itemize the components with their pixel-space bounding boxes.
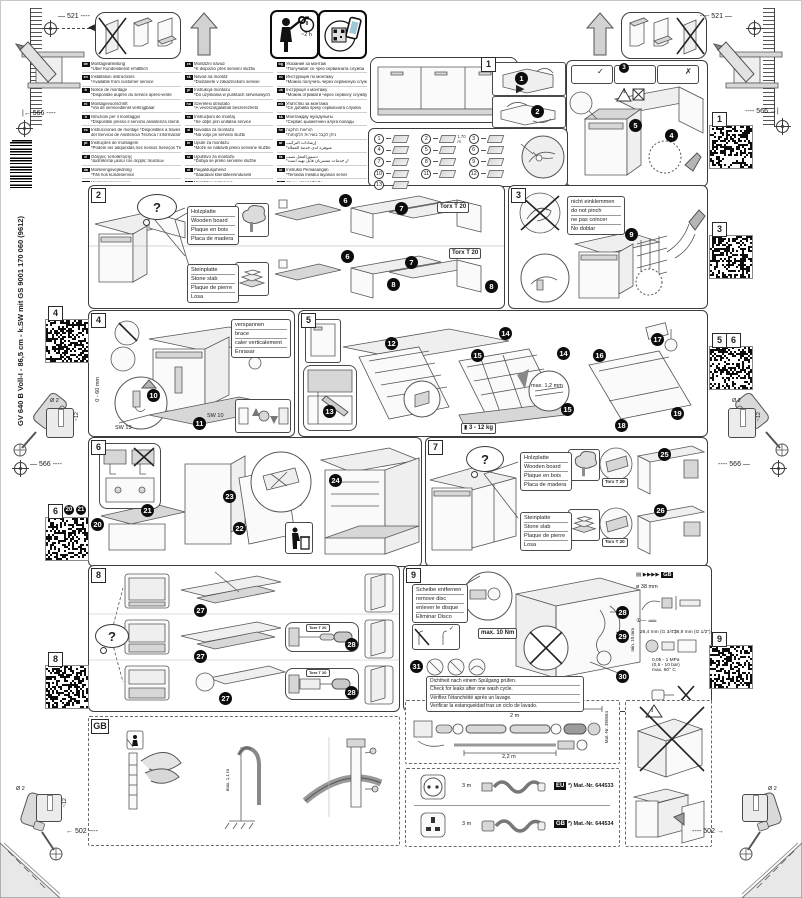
part-item-brackets: 7 xyxy=(374,156,421,168)
language-code-badge: ru xyxy=(277,75,285,80)
torx-label: Torx T 20 xyxy=(602,538,628,547)
language-entry-text: คำแนะนำการติดตั้ง*ขอรับได้จากศูนย์บริการ xyxy=(286,181,331,182)
dim-566-left-mid: — 566 ---- xyxy=(30,461,62,468)
language-code-badge: el xyxy=(82,155,90,160)
drill-depth-label: ~12 xyxy=(74,412,80,421)
dim-521-left: — 521 ---- xyxy=(58,13,90,20)
cord-length: 3 m xyxy=(462,783,471,789)
language-code-badge: en xyxy=(82,75,90,80)
region-badge: EU xyxy=(554,782,566,790)
language-entry-text: Návod na montáž*Dostanete v zákazníckom … xyxy=(194,75,260,85)
fixing-clips-icon xyxy=(392,146,410,154)
part-number: 8 xyxy=(421,157,431,167)
step8-panel: 8 ? xyxy=(88,565,400,712)
drill-diameter-label: Ø 2 xyxy=(16,786,25,792)
warning-icon: ! xyxy=(651,707,653,714)
arrow-left-icon: ◀ xyxy=(88,22,95,33)
step-badge: 3 xyxy=(619,63,629,73)
pinch-note: nicht einklemmendo not pinchne pas coinc… xyxy=(567,196,625,235)
cross-icon: ✗ xyxy=(685,67,692,76)
torque-label: max. 10 Nm xyxy=(478,628,517,639)
step-badge: 8 xyxy=(485,280,498,293)
torx-label: Torx T 20 xyxy=(602,478,628,487)
step7-panel: 7 ? HolzplatteWooden boardPlaque en bois… xyxy=(425,437,708,567)
language-entry-text: Monteringsvejledning*Fås hos kundeservic… xyxy=(91,168,134,178)
hose-22m-label: 2,2 m xyxy=(502,754,516,760)
language-entry-text: Οδηγίες τοποθέτησης*Διατίθενται μέσω του… xyxy=(91,155,164,165)
tree-icon xyxy=(235,203,269,237)
language-entry-text: Instrucciones de montaje *Disponibles a … xyxy=(91,128,181,138)
step-badge: 20 xyxy=(91,518,104,531)
wood-note: HolzplatteWooden boardPlaque en boisPlac… xyxy=(520,452,572,491)
g12-label: 28,9 mm (G 1/2") xyxy=(674,630,711,635)
step-badge: 26 xyxy=(654,504,667,517)
language-entry-text: Montageanleitung*Über Kundendienst erhäl… xyxy=(91,62,148,72)
step1-parts-list: 121,70 m345678910111213 xyxy=(368,128,568,187)
language-code-badge: kk xyxy=(277,115,285,120)
qr-step-label: 4 xyxy=(48,306,63,321)
mat-number: *) Mat.-Nr. 644533 xyxy=(568,783,614,789)
clamp-detail-box xyxy=(303,365,357,431)
torx-label: Torx T 20 xyxy=(449,248,481,259)
language-code-badge: lv xyxy=(185,181,193,182)
mat-number: *) Mat.-Nr. 644534 xyxy=(568,821,614,827)
language-code-badge: id xyxy=(277,168,285,173)
language-entry: mkУпатство за монтажа*Се добива преку се… xyxy=(277,102,367,113)
language-code-badge: ar xyxy=(277,141,285,146)
level-adjust-icons xyxy=(235,399,291,433)
step-badge: 15 xyxy=(561,403,574,416)
no-lid-removal-panel: ! xyxy=(625,700,712,847)
mounting-template-icon xyxy=(486,135,504,143)
stone-icon xyxy=(235,262,269,296)
step-badge: 19 xyxy=(671,407,684,420)
part-number: 4 xyxy=(374,145,384,155)
no-kink-icons xyxy=(426,658,486,676)
step6-panel: 6 20 21 xyxy=(88,437,422,567)
language-code-badge: sl xyxy=(185,128,193,133)
part-item-drain-hose: 21,70 m xyxy=(421,133,468,145)
language-entry: lvMontāžas instrukcija*Saņemama klientu … xyxy=(185,181,273,182)
language-code-badge: hr xyxy=(185,141,193,146)
step-badge: 13 xyxy=(323,405,336,418)
part-item-base-cover: 5 xyxy=(421,145,468,157)
step-badge: 10 xyxy=(147,389,160,402)
page-curl-bottom-left xyxy=(0,843,60,898)
language-code-badge: hu xyxy=(185,102,193,107)
step-badge: 12 xyxy=(385,337,398,350)
step-badge: 30 xyxy=(616,670,629,683)
screws-long-icon xyxy=(486,158,504,166)
step-badge: 11 xyxy=(193,417,206,430)
step9-panel: 9 Scheibe entfernenremove discenlever le… xyxy=(403,565,712,712)
cord-sketch xyxy=(480,775,546,799)
part-number: 12 xyxy=(469,169,479,179)
drain-hose-icon xyxy=(439,135,457,143)
panel-no-side-mounting xyxy=(95,12,181,59)
language-entry: elΟδηγίες τοποθέτησης*Διατίθενται μέσω τ… xyxy=(82,155,181,166)
arrow-up-icon xyxy=(189,11,219,57)
standpipe-height-icons: ✓ xyxy=(412,624,460,650)
step-badge: 20 xyxy=(64,505,74,515)
question-cloud: ? xyxy=(95,624,129,648)
step-badge: 6 xyxy=(341,250,354,263)
part-label: 1,70 m xyxy=(457,134,468,144)
language-code-badge: mk xyxy=(277,102,285,107)
check-icon: ✓ xyxy=(597,67,604,76)
drill-diameter-label: Ø 2 xyxy=(732,398,741,404)
part-item-protection-plates: 8 xyxy=(421,156,468,168)
step-badge: 14 xyxy=(557,347,570,360)
arrow-right-icon: ▶ xyxy=(516,82,524,95)
language-code-badge: ro xyxy=(185,115,193,120)
min10-label: min. 10 mm xyxy=(630,628,635,652)
step-1-label: 1 xyxy=(481,57,496,72)
step-badge: 21 xyxy=(141,504,154,517)
leak-check-note: Dichtheit nach einem Spülgang prüfen.Che… xyxy=(426,676,584,712)
question-cloud: ? xyxy=(137,194,177,220)
drill-hole-template xyxy=(46,408,74,438)
angle-brackets-icon xyxy=(392,170,410,178)
language-entry-text: הוראות התקנה*ניתן לקבל בשירות הלקוחות xyxy=(286,128,336,138)
torx-label: Torx T 20 xyxy=(306,669,330,677)
installation-manual-page: — 521 ---- ◀ |← 566 ---- ---- 521 — ----… xyxy=(0,0,802,898)
drill-depth-label: ~12 xyxy=(756,412,762,421)
part-item-countersunk-screws: 12 xyxy=(469,168,516,180)
weight-label: ▮ 3 - 12 kg xyxy=(461,423,496,434)
language-list-column-2: csMontážní návod*K dispozici přes servis… xyxy=(185,62,273,182)
language-entry: roInstrucţiuni de montaj*Se obţin prin u… xyxy=(185,115,273,126)
drill-depth-label: ~12 xyxy=(62,798,68,807)
question-cloud: ? xyxy=(466,446,504,472)
scan-qr-with-phone-icon xyxy=(318,10,367,59)
sw10-label: SW 10 xyxy=(207,413,224,419)
language-entry-text: Монтаждау нұсқаулығы*Сервис қызметінен а… xyxy=(286,115,354,125)
part-item-spacer-wedges: 13 xyxy=(374,179,421,191)
qr-code-step5-6 xyxy=(710,347,752,389)
disc-note: Scheibe entfernenremove discenlever le d… xyxy=(412,584,468,623)
language-code-badge: es xyxy=(82,128,90,133)
qr-step-label: 8 xyxy=(48,652,63,667)
step-5-label: 5 xyxy=(301,313,316,328)
part-number: 11 xyxy=(421,169,431,179)
professional-installation-icon: ~2 h xyxy=(270,10,319,59)
step-8-label: 8 xyxy=(91,568,106,583)
qr-step-label: 6 xyxy=(726,333,741,348)
qr-code-step9 xyxy=(710,646,752,688)
time-estimate-label: ~2 h xyxy=(301,32,312,38)
drill-hole-template xyxy=(742,794,768,822)
language-entry: daMonteringsvejledning*Fås hos kundeserv… xyxy=(82,168,181,179)
language-code-badge: sr xyxy=(185,155,193,160)
drill-hole-template xyxy=(36,794,62,822)
range-0-60-label: 0 - 60 mm xyxy=(95,377,101,402)
cord-sketch xyxy=(480,813,546,837)
gb-label: GB xyxy=(91,719,109,734)
language-entry-text: Monteringsanvisning*Fås hos kundtjänst xyxy=(91,181,130,182)
part-number: 2 xyxy=(421,134,431,144)
step-6-label: 6 xyxy=(91,440,106,455)
language-code-badge: fa xyxy=(277,155,285,160)
g34-label: 26,4 mm (G 3/4") xyxy=(640,630,677,635)
language-code-badge: fr xyxy=(82,88,90,93)
qr-step-label: 6 xyxy=(48,504,63,519)
language-entry: slNavodila za montažo*Na voljo pri servi… xyxy=(185,128,273,139)
language-entry: huSzerelési útmutató*A vevőszolgálatnál … xyxy=(185,102,273,113)
language-entry: enInstallation instructions*Available fr… xyxy=(82,75,181,86)
crosshair-icon xyxy=(14,462,27,475)
language-entry-text: Installation instructions*Available from… xyxy=(91,75,154,85)
step-badge: 9 xyxy=(625,228,638,241)
language-code-badge: pt xyxy=(82,141,90,146)
step-badge: 16 xyxy=(593,349,606,362)
torx-label: Torx T 20 xyxy=(437,202,469,213)
step1-unpack-top: 1 xyxy=(492,62,566,96)
stone-note: SteinplatteStone slabPlaque de pierreLos… xyxy=(520,512,572,551)
language-entry-text: Інструкція з монтажу*Можна отримати чере… xyxy=(286,88,367,98)
dia-38-label: ø 38 mm xyxy=(636,584,658,590)
language-entry: csMontážní návod*K dispozici přes servis… xyxy=(185,62,273,73)
step-badge: 29 xyxy=(616,630,629,643)
cord-length: 3 m xyxy=(462,821,471,827)
torx-label: Torx T 20 xyxy=(306,624,330,632)
panel-no-side-mounting-mirrored xyxy=(621,12,707,59)
qr-step-label: 1 xyxy=(712,112,727,127)
part-item-screws-short: 6 xyxy=(469,145,516,157)
part-number: 3 xyxy=(469,134,479,144)
language-code-badge: sv xyxy=(82,181,90,182)
qr-code-step8 xyxy=(46,666,88,708)
language-code-badge: de xyxy=(82,62,90,67)
step-badge: 4 xyxy=(665,129,678,142)
qr-code-step1 xyxy=(710,126,752,168)
step-3-label: 3 xyxy=(511,188,526,203)
part-number: 6 xyxy=(469,145,479,155)
step-badge: 21 xyxy=(76,505,86,515)
step-badge: 17 xyxy=(651,333,664,346)
base-cover-icon xyxy=(439,146,457,154)
crosshair-icon xyxy=(772,462,785,475)
stone-note: SteinplatteStone slabPlaque de pierreLos… xyxy=(187,264,239,303)
step-badge: 31 xyxy=(410,660,423,673)
step-badge: 27 xyxy=(219,692,232,705)
step-badge: 7 xyxy=(395,202,408,215)
drill-diameter-label: Ø 2 xyxy=(50,398,59,404)
step-badge: 23 xyxy=(223,490,236,503)
pencil-mark-counter-icon xyxy=(14,38,90,94)
language-entry: plInstrukcja montażu*Do uzyskania w punk… xyxy=(185,88,273,99)
page-curl-bottom-right xyxy=(742,843,802,898)
dim-521-right: ---- 521 — xyxy=(700,13,732,20)
drill-hole-template xyxy=(728,408,756,438)
drill-diameter-label: Ø 2 xyxy=(768,786,777,792)
pressure-label: 0,05 - 1 MPa(0,5 - 10 bar)max. 60° C xyxy=(652,658,680,673)
hand-detail-circle xyxy=(519,132,565,182)
language-entry: deMontageanleitung*Über Kundendienst erh… xyxy=(82,62,181,73)
brace-note: verspannenbracecaler verticalementEnrasa… xyxy=(231,319,291,358)
step-badge: 22 xyxy=(233,522,246,535)
step-badge: 5 xyxy=(629,119,642,132)
language-code-badge: pl xyxy=(185,88,193,93)
dim-566-left-top: |← 566 ---- xyxy=(22,110,56,117)
hose-adapter-row: ①— ⚌⚌ xyxy=(636,618,656,624)
language-entry: hrUpute za montažu*Može se nabaviti prek… xyxy=(185,141,273,152)
countersunk-screws-icon xyxy=(486,170,504,178)
step2-panel: 2 ? HolzplatteWooden boardPlaque en bois… xyxy=(88,185,505,309)
language-code-badge: da xyxy=(82,168,90,173)
language-entry-text: Instrukcja montażu*Do uzyskania w punkta… xyxy=(194,88,270,98)
language-entry: frNotice de montage*Disponible auprès du… xyxy=(82,88,181,99)
language-code-badge: sk xyxy=(185,75,193,80)
language-entry-text: Upute za montažu*Može se nabaviti preko … xyxy=(194,141,271,151)
step5-panel: 5 12 13 xyxy=(298,310,708,437)
language-entry: arإرشادات التركيب*متوفرة لدى خدمة العملا… xyxy=(277,141,367,152)
language-code-badge: cs xyxy=(185,62,193,67)
dim-566-right: ---- 566 →| xyxy=(745,108,779,115)
crosshair-icon xyxy=(44,22,57,35)
language-entry: kkМонтаждау нұсқаулығы*Сервис қызметінен… xyxy=(277,115,367,126)
language-code-badge: uk xyxy=(277,88,285,93)
part-number: 10 xyxy=(374,169,384,179)
part-item-angle-brackets: 10 xyxy=(374,168,421,180)
qr-code-step3 xyxy=(710,236,752,278)
qr-step-label: 5 xyxy=(712,333,727,348)
arrow-up-icon xyxy=(585,11,615,57)
language-code-badge: it xyxy=(82,115,90,120)
language-entry: etPaigaldusjuhend*Saadaval klienditeenin… xyxy=(185,168,273,179)
language-code-badge: he xyxy=(277,128,285,133)
step-badge: 18 xyxy=(615,419,628,432)
step-badge: 2 xyxy=(531,105,544,118)
language-entry-text: Uputstvo za montažu*Dobija se preko serv… xyxy=(194,155,256,165)
step-badge: 7 xyxy=(405,256,418,269)
language-entry-text: Szerelési útmutató*A vevőszolgálatnál be… xyxy=(194,102,258,112)
language-code-badge: et xyxy=(185,168,193,173)
sealing-strip-icon xyxy=(392,135,410,143)
step-badge: 24 xyxy=(329,474,342,487)
step-badge: 28 xyxy=(345,638,358,651)
language-entry: thคำแนะนำการติดตั้ง*ขอรับได้จากศูนย์บริก… xyxy=(277,181,367,182)
step-2-label: 2 xyxy=(91,188,106,203)
language-entry-text: دستورالعمل نصب*از خدمات مشتریان قابل تهی… xyxy=(286,155,349,165)
gb-row: ▤ ▶▶▶▶ GB xyxy=(636,572,673,578)
wood-note: HolzplatteWooden boardPlaque en boisPlac… xyxy=(187,206,239,245)
part-item-mounting-template: 3 xyxy=(469,133,516,145)
hook-detail-box xyxy=(99,443,161,509)
dashed-lead-line xyxy=(62,28,90,29)
language-entry: ruИнструкция по монтажу*Можно получить ч… xyxy=(277,75,367,86)
step-badge: 28 xyxy=(616,606,629,619)
trash-icon xyxy=(285,522,313,554)
hose-2m-label: 2 m xyxy=(510,713,519,719)
part-item-cap: 11 xyxy=(421,168,468,180)
language-entry-text: Инструкция по монтажу*Можно получить чер… xyxy=(286,75,367,85)
language-entry: itIstruzioni per il montaggio*Disponibil… xyxy=(82,115,181,126)
step3-panel: 3 nicht einklemmendo not pinchne pas coi… xyxy=(508,185,708,309)
language-entry-text: Instrucţiuni de montaj*Se obţin prin uni… xyxy=(194,115,251,125)
language-entry-text: Montážní návod*K dispozici přes servisní… xyxy=(194,62,255,72)
qr-step-label: 3 xyxy=(712,222,727,237)
gb-drain-panel: GB max. 1,1 m xyxy=(88,716,400,846)
language-code-badge: nl xyxy=(82,102,90,107)
qr-code-step6 xyxy=(46,518,88,560)
dim-502-left: ← 502 ---- xyxy=(66,828,98,835)
step4-panel: 4 verspannenbracecaler verticalementEnra… xyxy=(88,310,295,437)
gb-socket-icon xyxy=(420,812,446,838)
language-entry-text: Montagevoorschrift*Via de servicedienst … xyxy=(91,102,155,112)
part-number: 7 xyxy=(374,157,384,167)
drain-clamp-sketch xyxy=(638,592,704,614)
step1-unpack-bottom: 2 xyxy=(492,96,566,128)
step-badge: 28 xyxy=(345,686,358,699)
language-list-column-3: bgУказания за монтаж*Получават се чрез с… xyxy=(277,62,367,182)
step-badge: 15 xyxy=(471,349,484,362)
crosshair-icon xyxy=(748,22,761,35)
language-entry: faدستورالعمل نصب*از خدمات مشتریان قابل ت… xyxy=(277,155,367,166)
language-entry: ptInstruções de montagem*Podem ser adqui… xyxy=(82,141,181,152)
language-entry-text: Указания за монтаж*Получават се чрез сер… xyxy=(286,62,364,72)
step1-main-diagram: ✓ ✗ 3 5 4 ! xyxy=(566,60,708,187)
language-entry: nlMontagevoorschrift*Via de servicediens… xyxy=(82,102,181,113)
hose-mat-number: Mat.-Nr. 350564 xyxy=(604,711,609,743)
cap-icon xyxy=(439,170,457,178)
language-entry: idInstruksi Pemasangan*Tersedia melalui … xyxy=(277,168,367,179)
language-code-badge: bg xyxy=(277,62,285,67)
part-number: 13 xyxy=(374,180,384,190)
language-entry: ukІнструкція з монтажу*Можна отримати че… xyxy=(277,88,367,99)
step-badge: 25 xyxy=(658,448,671,461)
step-9-label: 9 xyxy=(406,568,421,583)
crosshair-icon xyxy=(18,122,31,135)
warning-icon: ! xyxy=(623,88,625,95)
tap-connector-sketch xyxy=(642,638,702,654)
language-entry-text: Navodila za montažo*Na voljo pri servisn… xyxy=(194,128,245,138)
language-entry: bgУказания за монтаж*Получават се чрез с… xyxy=(277,62,367,73)
language-entry-text: Notice de montage*Disponible auprès du s… xyxy=(91,88,172,98)
step-7-label: 7 xyxy=(428,440,443,455)
sw13-label: SW 13 xyxy=(115,425,132,431)
brackets-icon xyxy=(392,158,410,166)
part-item-screws-long: 9 xyxy=(469,156,516,168)
step-4-label: 4 xyxy=(91,313,106,328)
stone-icon xyxy=(568,509,600,541)
language-entry-text: Упатство за монтажа*Се добива преку серв… xyxy=(286,102,361,112)
language-entry-text: Montāžas instrukcija*Saņemama klientu se… xyxy=(194,181,246,182)
pencil-mark-counter-icon xyxy=(712,38,788,94)
parts-grid: 121,70 m345678910111213 xyxy=(374,133,516,181)
protection-plates-icon xyxy=(439,158,457,166)
model-side-text: GV 640 B Voll-I - 86,5 cm - k.SW mit GS … xyxy=(16,196,25,426)
step-badge: 8 xyxy=(387,278,400,291)
spacer-wedges-icon xyxy=(392,181,410,189)
language-entry-text: Instruksi Pemasangan*Tersedia melalui la… xyxy=(286,168,347,178)
language-entry-text: Instruções de montagem*Podem ser adquiri… xyxy=(91,141,181,151)
language-entry: esInstrucciones de montaje *Disponibles … xyxy=(82,128,181,139)
part-item-fixing-clips: 4 xyxy=(374,145,421,157)
language-entry: srUputstvo za montažu*Dobija se preko se… xyxy=(185,155,273,166)
part-item-sealing-strip: 1 xyxy=(374,133,421,145)
step-badge: 27 xyxy=(194,604,207,617)
power-cord-panel: 3 m EU *) Mat.-Nr. 644533 3 m GB *) Mat.… xyxy=(405,768,620,847)
language-entry-text: Paigaldusjuhend*Saadaval klienditeenindu… xyxy=(194,168,251,178)
step-badge: 6 xyxy=(339,194,352,207)
language-entry-text: Istruzioni per il montaggio*Disponibili … xyxy=(91,115,179,125)
eu-socket-icon xyxy=(420,774,446,800)
dim-566-right-mid: ---- 566 — xyxy=(718,461,750,468)
language-entry: heהוראות התקנה*ניתן לקבל בשירות הלקוחות xyxy=(277,128,367,139)
hose-height-label: max. 1,1 m xyxy=(225,769,230,791)
qr-code-step4 xyxy=(46,320,88,362)
